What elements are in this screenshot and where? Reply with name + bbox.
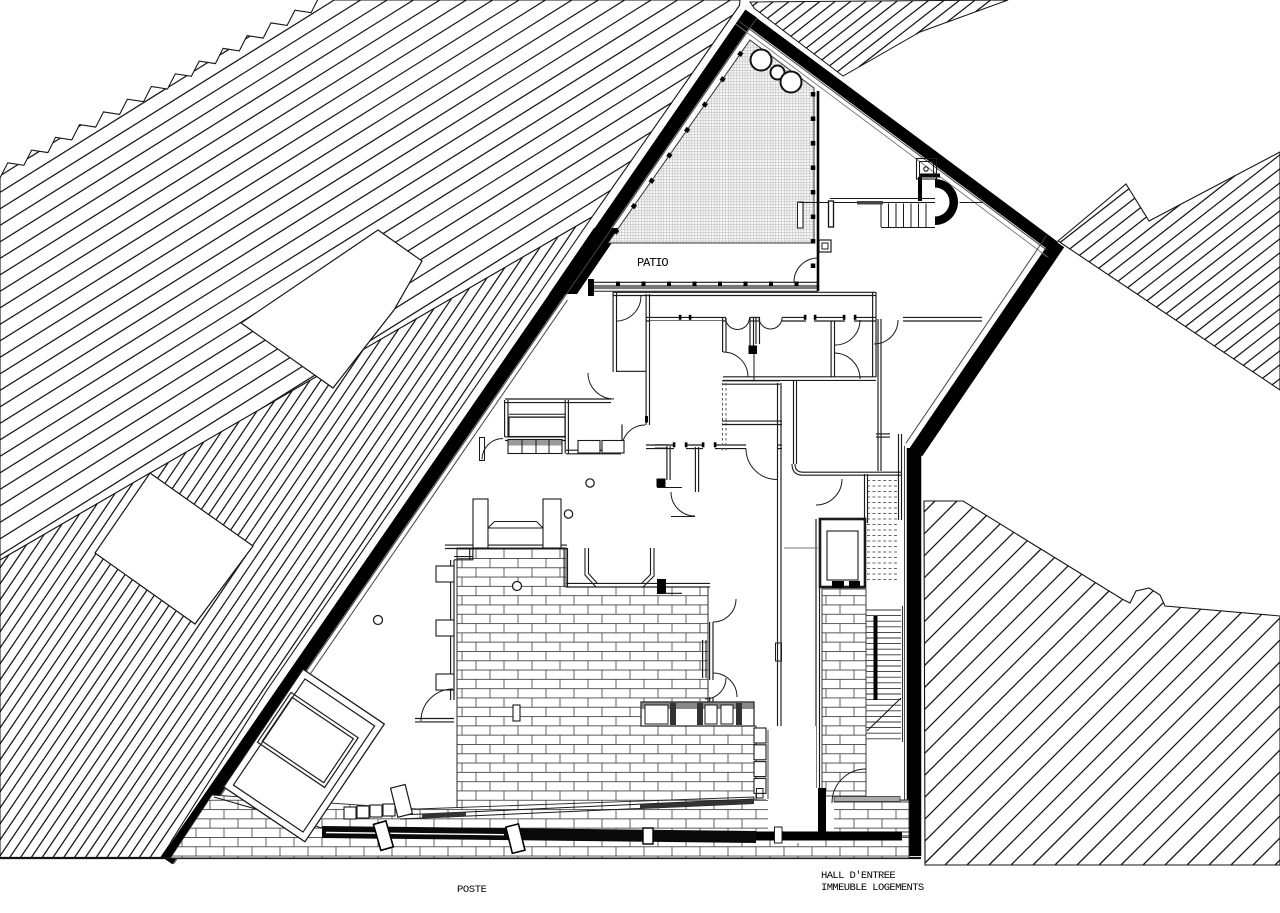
svg-text:IMMEUBLE LOGEMENTS: IMMEUBLE LOGEMENTS: [821, 882, 924, 894]
svg-text:POSTE: POSTE: [457, 884, 487, 896]
svg-text:HALL D'ENTREE: HALL D'ENTREE: [821, 870, 895, 882]
svg-text:PATIO: PATIO: [637, 256, 668, 270]
